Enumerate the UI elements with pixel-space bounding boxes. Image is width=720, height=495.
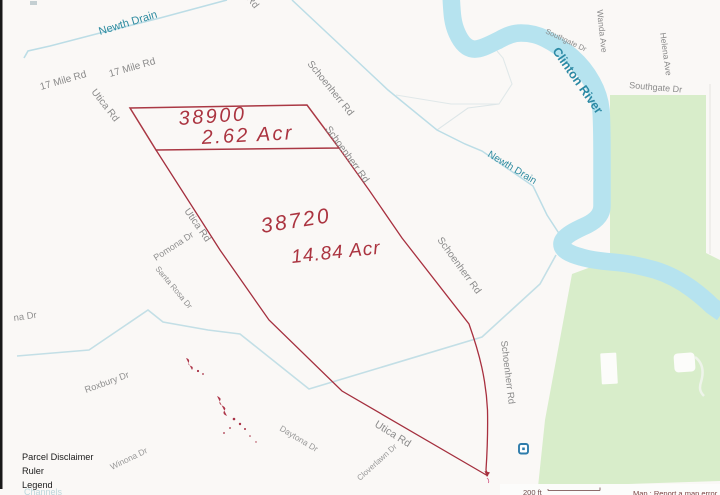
svg-text:200 ft: 200 ft: [523, 488, 543, 495]
svg-text:Ruler: Ruler: [22, 466, 44, 476]
svg-text:Map : Report a map error: Map : Report a map error: [633, 489, 718, 495]
svg-text:Channels: Channels: [24, 487, 63, 495]
svg-text:Parcel Disclaimer: Parcel Disclaimer: [22, 452, 93, 462]
